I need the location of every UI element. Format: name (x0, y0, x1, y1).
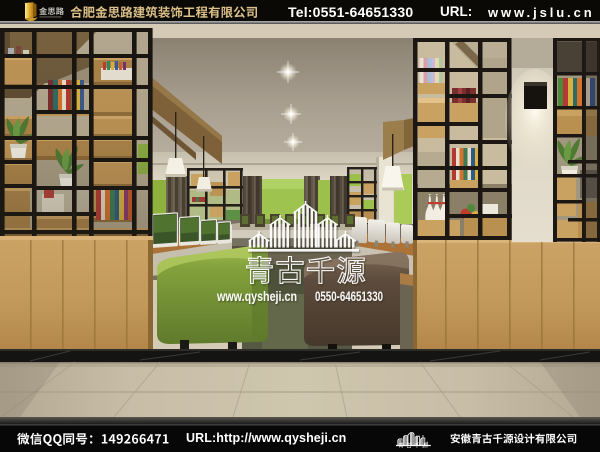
svg-text:www.qysheji.cn: www.qysheji.cn (216, 289, 297, 304)
svg-text:0550-64651330: 0550-64651330 (315, 289, 383, 304)
